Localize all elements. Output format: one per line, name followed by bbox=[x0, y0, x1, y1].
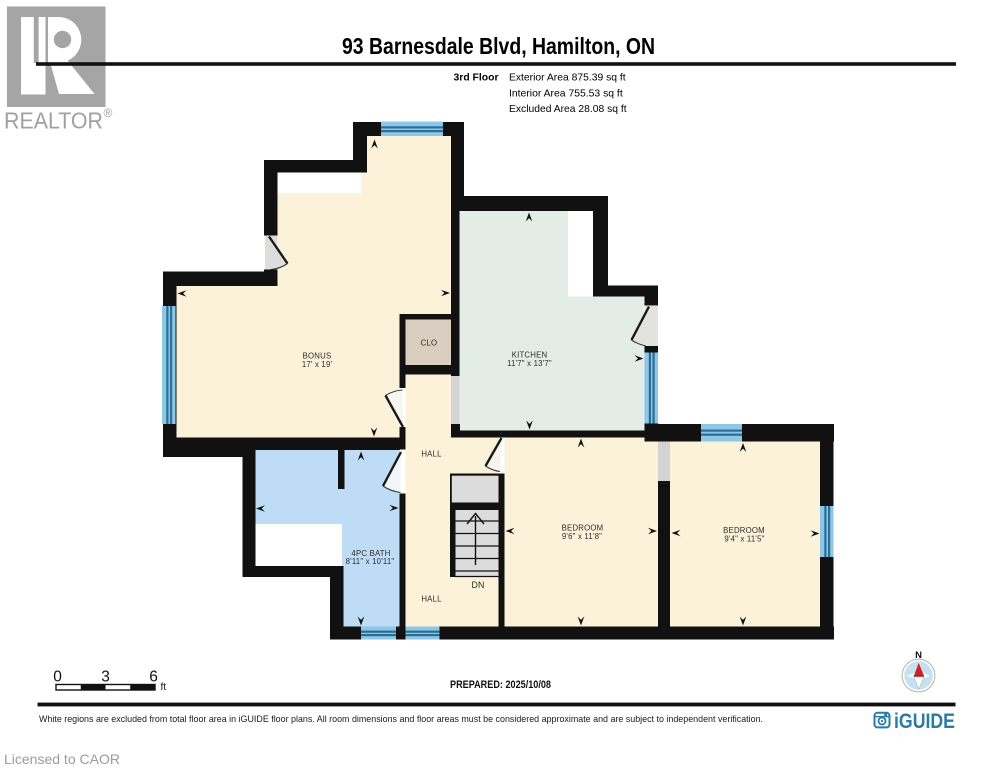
svg-text:Interior Area 755.53 sq ft: Interior Area 755.53 sq ft bbox=[509, 88, 623, 99]
svg-text:HALL: HALL bbox=[421, 450, 442, 459]
svg-text:PREPARED: 2025/10/08: PREPARED: 2025/10/08 bbox=[450, 679, 551, 691]
svg-text:11'7" x 13'7": 11'7" x 13'7" bbox=[507, 359, 552, 368]
svg-text:REALTOR: REALTOR bbox=[4, 108, 103, 134]
svg-text:9'6" x 11'8": 9'6" x 11'8" bbox=[562, 532, 602, 541]
svg-text:0: 0 bbox=[53, 669, 62, 686]
svg-text:Licensed to CAOR: Licensed to CAOR bbox=[4, 751, 120, 767]
svg-text:9'4" x 11'5": 9'4" x 11'5" bbox=[724, 534, 764, 543]
svg-text:3rd Floor: 3rd Floor bbox=[454, 72, 499, 83]
svg-text:6: 6 bbox=[149, 669, 158, 686]
svg-text:White regions are excluded fro: White regions are excluded from total fl… bbox=[39, 714, 763, 724]
svg-text:Excluded Area 28.08 sq ft: Excluded Area 28.08 sq ft bbox=[509, 104, 627, 115]
svg-text:8'11" x 10'11": 8'11" x 10'11" bbox=[346, 557, 395, 566]
svg-text:CLO: CLO bbox=[421, 338, 438, 347]
svg-text:93 Barnesdale Blvd, Hamilton,: 93 Barnesdale Blvd, Hamilton, ON bbox=[342, 33, 655, 59]
svg-text:®: ® bbox=[104, 106, 113, 120]
svg-text:HALL: HALL bbox=[421, 595, 442, 604]
svg-text:3: 3 bbox=[101, 669, 110, 686]
svg-text:iGUIDE: iGUIDE bbox=[894, 709, 955, 733]
svg-text:ft: ft bbox=[161, 682, 167, 693]
svg-text:DN: DN bbox=[471, 580, 484, 590]
svg-text:17' x 19': 17' x 19' bbox=[302, 360, 333, 369]
svg-text:Exterior Area 875.39 sq ft: Exterior Area 875.39 sq ft bbox=[509, 72, 626, 83]
